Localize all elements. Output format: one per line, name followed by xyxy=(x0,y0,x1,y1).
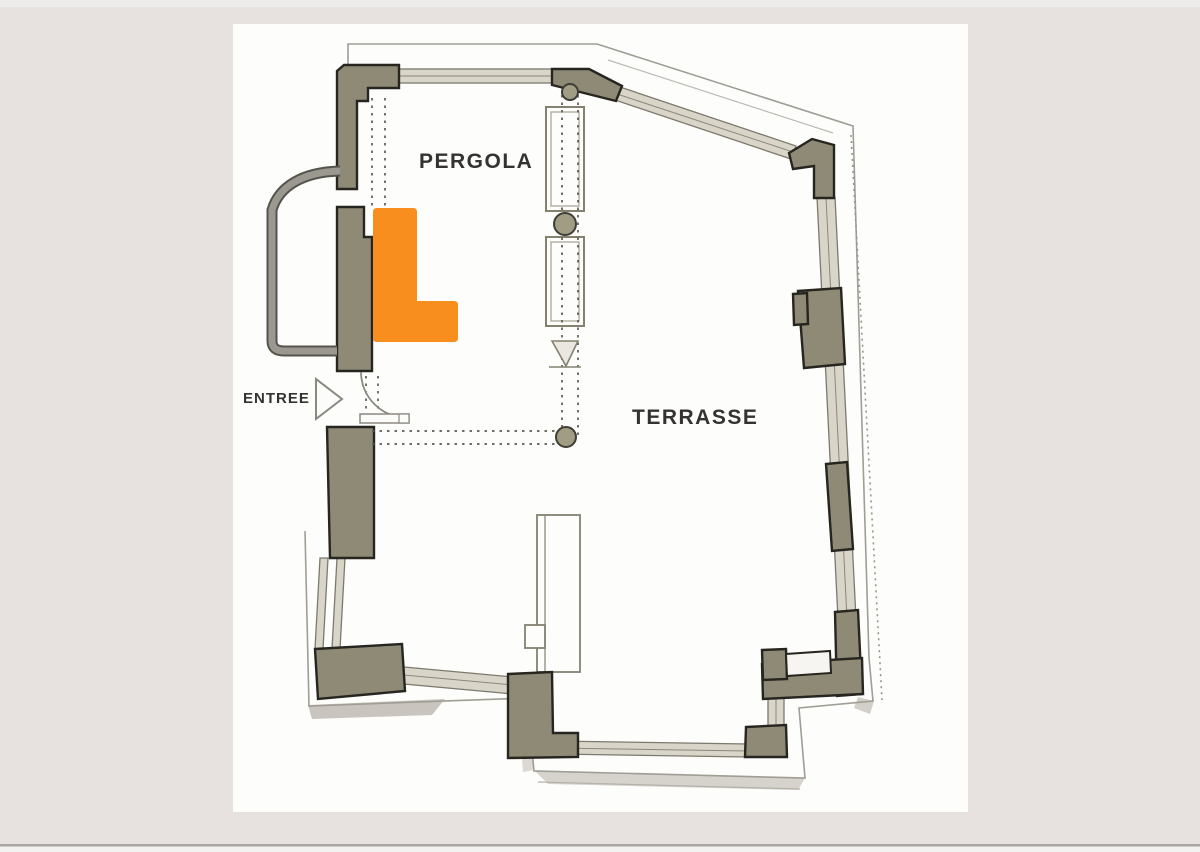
post-node xyxy=(556,427,576,447)
wall-bottom-right-stub xyxy=(762,649,787,680)
pergola-label: PERGOLA xyxy=(419,150,533,173)
door-hinge xyxy=(399,414,409,423)
planter-box xyxy=(546,107,584,211)
window-detail-rect xyxy=(786,651,831,676)
pillar-lower-left xyxy=(327,427,374,558)
terrasse-label: TERRASSE xyxy=(632,406,758,429)
wall-bay-right-block xyxy=(745,725,787,757)
wall-bottom-left-block xyxy=(315,644,405,699)
post-node xyxy=(562,84,578,100)
wall-right-block-lower xyxy=(826,462,853,551)
bottom-divider-line xyxy=(0,844,1200,847)
wall-right-block-tab xyxy=(793,293,808,325)
entree-label: ENTREE xyxy=(243,390,310,407)
post-node xyxy=(554,213,576,235)
bottom-strip xyxy=(0,847,1200,852)
floor-plan-svg: PERGOLA TERRASSE ENTREE xyxy=(0,0,1200,852)
floor-plan-screenshot: PERGOLA TERRASSE ENTREE xyxy=(0,0,1200,852)
top-edge-strip xyxy=(0,0,1200,7)
